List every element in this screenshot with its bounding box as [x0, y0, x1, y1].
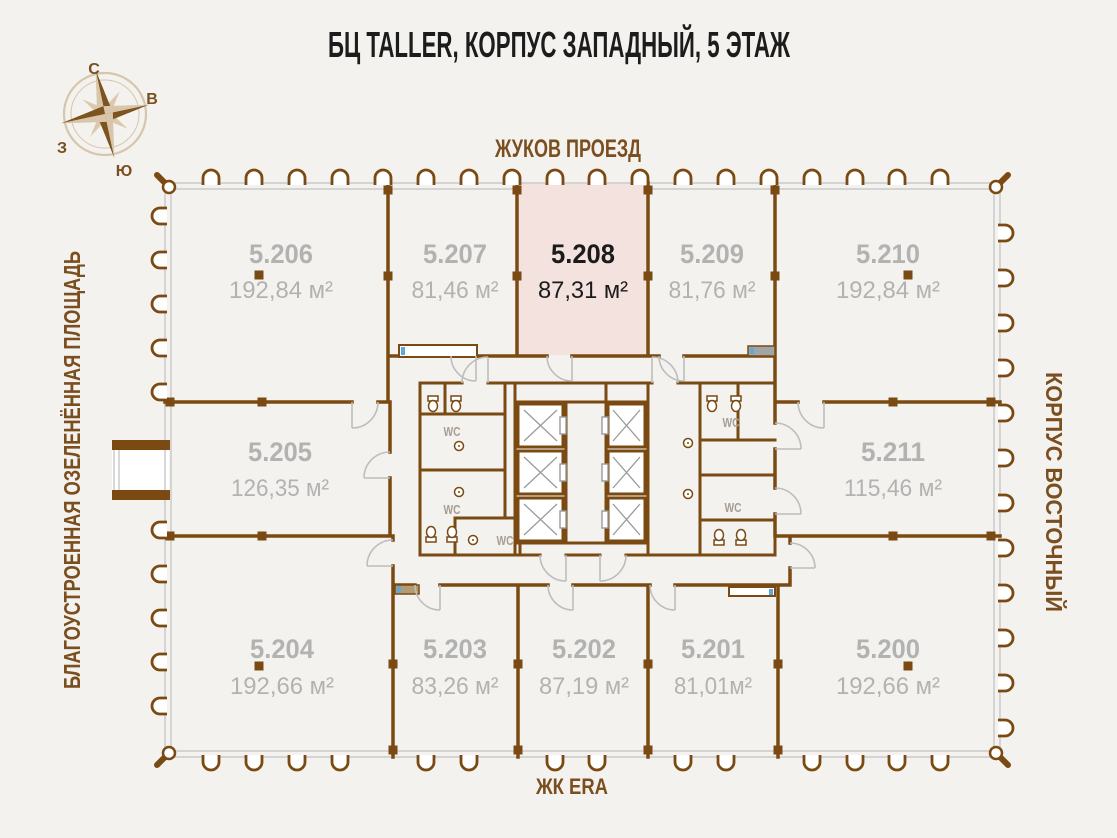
core-walls	[420, 383, 775, 555]
svg-text:5.203: 5.203	[423, 634, 487, 664]
compass-north-label: С	[88, 61, 100, 78]
svg-text:5.200: 5.200	[856, 634, 920, 664]
svg-text:5.208: 5.208	[551, 239, 615, 269]
wc-label-2: WC	[444, 502, 461, 517]
svg-text:5.209: 5.209	[680, 239, 744, 269]
compass-west-label: З	[57, 140, 67, 157]
compass-main-star	[52, 61, 159, 168]
svg-text:5.207: 5.207	[423, 239, 487, 269]
svg-text:5.201: 5.201	[681, 634, 745, 664]
svg-text:87,31 м²: 87,31 м²	[538, 277, 628, 304]
wc-labels: WC WC WC WC WC	[444, 415, 742, 548]
street-label-bottom: ЖК ERA	[535, 774, 608, 799]
svg-text:5.202: 5.202	[552, 634, 616, 664]
room-5207-area[interactable]	[390, 185, 515, 354]
elevator-bank-right	[602, 404, 645, 541]
door-swings	[352, 356, 824, 610]
wc-label-1: WC	[444, 424, 461, 439]
svg-text:5.204: 5.204	[250, 634, 314, 664]
street-label-left: БЛАГОУСТРОЕННАЯ ОЗЕЛЕНЁННАЯ ПЛОЩАДЬ	[59, 251, 85, 689]
compass-south-label: Ю	[116, 163, 133, 180]
svg-text:192,84 м²: 192,84 м²	[836, 277, 940, 304]
street-label-top: ЖУКОВ ПРОЕЗД	[494, 135, 641, 163]
entrance-bump	[112, 449, 169, 491]
svg-text:83,26 м²: 83,26 м²	[412, 673, 499, 700]
wc-label-3: WC	[497, 533, 514, 548]
compass-east-label: В	[146, 91, 158, 108]
svg-text:192,66 м²: 192,66 м²	[836, 673, 940, 700]
svg-text:115,46 м²: 115,46 м²	[844, 475, 942, 502]
elevator-doors-right	[602, 417, 608, 528]
room-5208-area-highlighted[interactable]	[519, 184, 646, 355]
street-label-right: КОРПУС ВОСТОЧНЫЙ	[1041, 372, 1068, 612]
svg-text:5.211: 5.211	[861, 437, 925, 467]
svg-text:87,19 м²: 87,19 м²	[539, 673, 629, 700]
svg-text:192,66 м²: 192,66 м²	[230, 673, 334, 700]
elevator-doors-left	[560, 417, 566, 528]
room-5201-area[interactable]	[650, 587, 776, 755]
wc-label-4: WC	[723, 415, 740, 430]
room-areas	[167, 184, 998, 755]
room-5209-area[interactable]	[650, 185, 773, 354]
svg-text:192,84 м²: 192,84 м²	[229, 277, 333, 304]
svg-text:5.205: 5.205	[248, 437, 312, 467]
floor-plan-page: БЦ TALLER, КОРПУС ЗАПАДНЫЙ, 5 ЭТАЖ ЖУКОВ…	[0, 0, 1117, 838]
svg-text:5.210: 5.210	[856, 239, 920, 269]
page-title: БЦ TALLER, КОРПУС ЗАПАДНЫЙ, 5 ЭТАЖ	[328, 23, 790, 65]
svg-text:5.206: 5.206	[249, 239, 313, 269]
svg-text:81,76 м²: 81,76 м²	[669, 277, 756, 304]
room-5202-area[interactable]	[520, 587, 646, 755]
svg-text:126,35 м²: 126,35 м²	[231, 475, 329, 502]
compass-rose: С В З Ю	[52, 61, 159, 180]
svg-text:81,01м²: 81,01м²	[674, 673, 752, 700]
floor-plan-svg: БЦ TALLER, КОРПУС ЗАПАДНЫЙ, 5 ЭТАЖ ЖУКОВ…	[0, 0, 1117, 838]
room-5203-area[interactable]	[395, 587, 516, 755]
svg-text:81,46 м²: 81,46 м²	[412, 277, 499, 304]
core	[420, 383, 775, 555]
room-5205-area[interactable]	[167, 404, 388, 534]
elevator-bank-left	[518, 404, 566, 541]
wc-label-5: WC	[725, 500, 742, 515]
